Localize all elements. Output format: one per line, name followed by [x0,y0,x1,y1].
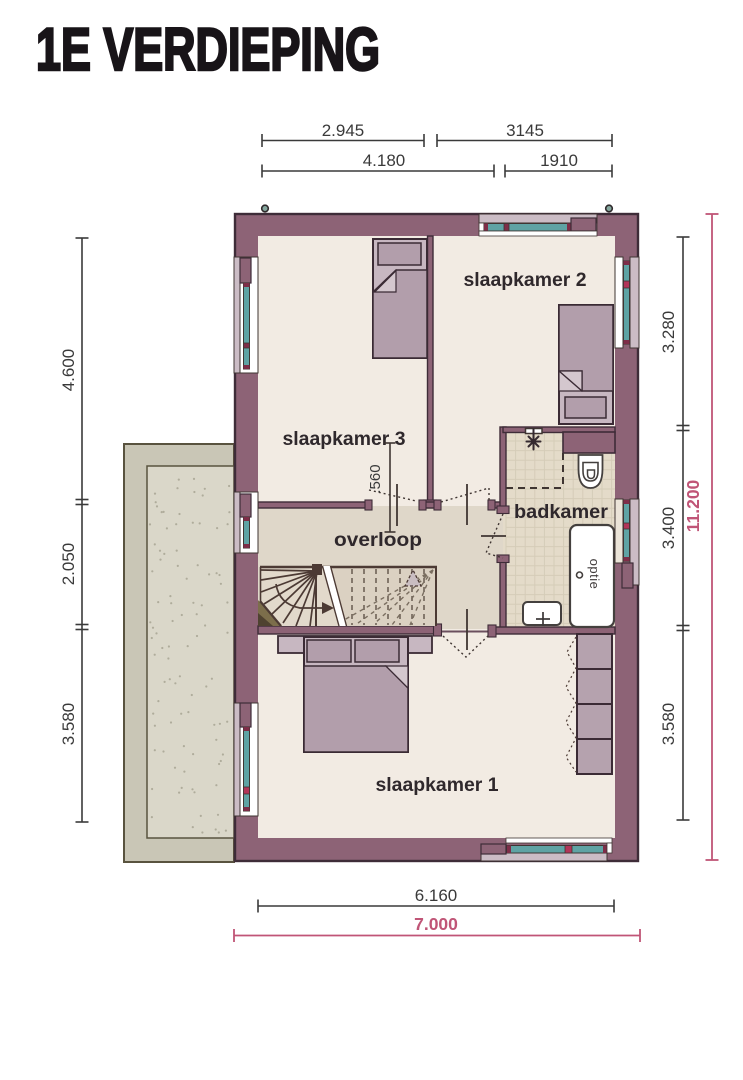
svg-text:2.050: 2.050 [59,543,78,586]
svg-text:6.160: 6.160 [415,886,458,905]
svg-text:3.580: 3.580 [659,703,678,746]
svg-text:11.200: 11.200 [683,479,703,532]
svg-text:1910: 1910 [540,151,578,170]
svg-text:badkamer: badkamer [514,502,609,523]
svg-text:slaapkamer 3: slaapkamer 3 [283,429,406,450]
svg-text:2.945: 2.945 [322,121,365,140]
svg-text:overloop: overloop [334,530,422,551]
svg-text:optie: optie [587,559,602,590]
svg-text:3.280: 3.280 [659,311,678,354]
svg-text:4.600: 4.600 [59,349,78,392]
svg-text:3.580: 3.580 [59,703,78,746]
svg-text:4.180: 4.180 [363,151,406,170]
svg-text:3145: 3145 [506,121,544,140]
svg-text:.560: .560 [367,464,384,493]
svg-text:1E VERDIEPING: 1E VERDIEPING [36,16,380,83]
svg-text:3.400: 3.400 [659,507,678,550]
svg-text:slaapkamer 2: slaapkamer 2 [464,270,587,291]
svg-text:slaapkamer 1: slaapkamer 1 [376,775,499,796]
svg-text:7.000: 7.000 [414,914,458,934]
